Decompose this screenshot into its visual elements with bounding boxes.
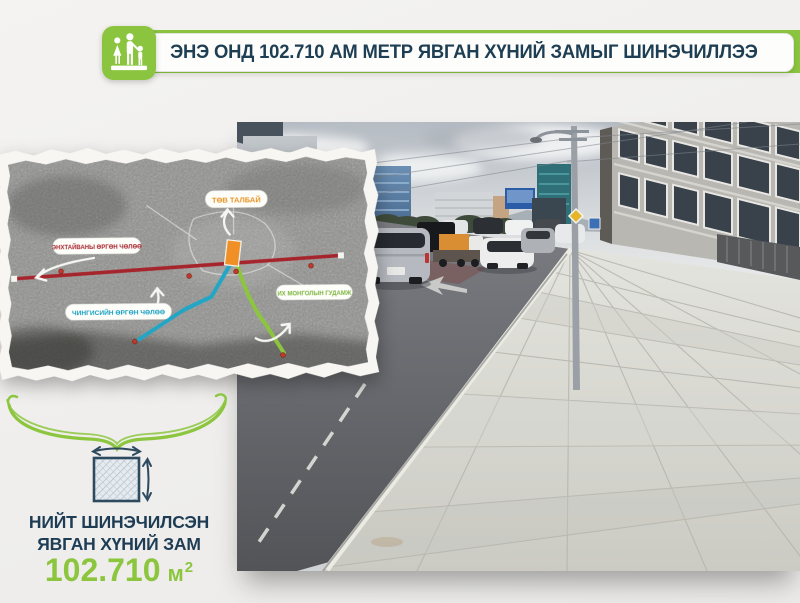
map-label-chinggis-avenue: ЧИНГИСИЙН ӨРГӨН ЧӨЛӨӨ — [65, 303, 171, 320]
satellite-map: ТӨВ ТАЛБАЙ ЭНХТАЙВАНЫ ӨРГӨН ЧӨЛӨӨ ЧИНГИС… — [0, 143, 381, 384]
infographic-slide: ТӨВ ТАЛБАЙ ЭНХТАЙВАНЫ ӨРГӨН ЧӨЛӨӨ ЧИНГИС… — [0, 0, 800, 603]
satellite-imagery — [0, 153, 381, 384]
unit-exponent: 2 — [185, 559, 193, 576]
blue-sign — [589, 218, 600, 229]
pedestrian-family-icon — [102, 26, 156, 80]
building-side — [600, 127, 612, 244]
header-bar: ЭНЭ ОНД 102.710 АМ МЕТР ЯВГАН ХҮНИЙ ЗАМЫ… — [134, 33, 794, 72]
renovated-area-value: 102.710 — [45, 552, 161, 588]
map-label-peace-avenue: ЭНХТАЙВАНЫ ӨРГӨН ЧӨЛӨӨ — [52, 237, 142, 254]
height-arrow — [143, 459, 151, 500]
width-arrow — [93, 447, 140, 455]
map-label-ikh-mongol: ИХ МОНГОЛЫН ГУДАМЖ — [276, 284, 352, 300]
central-square-marker — [224, 240, 241, 266]
summary-label: НИЙТ ШИНЭЧИЛСЭН ЯВГАН ХҮНИЙ ЗАМ — [0, 511, 238, 555]
unit-label: м — [168, 561, 184, 586]
flatbed-truck — [433, 234, 483, 267]
map-label-text: ТӨВ ТАЛБАЙ — [212, 195, 261, 205]
gray-sedan — [521, 228, 555, 253]
brace-strokes — [7, 394, 226, 449]
route-endpoint-west — [11, 276, 17, 282]
map-label-central-square: ТӨВ ТАЛБАЙ — [205, 190, 267, 208]
pavement-stain — [371, 537, 403, 547]
area-measure-icon — [85, 443, 159, 509]
square-meter-glyph — [94, 458, 139, 501]
route-endpoint-east — [338, 252, 344, 258]
summary-label-line1: НИЙТ ШИНЭЧИЛСЭН — [0, 511, 238, 533]
billboard-screen — [507, 190, 533, 203]
summary-value: 102.710м2 — [0, 552, 238, 589]
page-title: ЭНЭ ОНД 102.710 АМ МЕТР ЯВГАН ХҮНИЙ ЗАМЫ… — [170, 42, 758, 64]
map-label-text: ИХ МОНГОЛЫН ГУДАМЖ — [277, 291, 351, 298]
